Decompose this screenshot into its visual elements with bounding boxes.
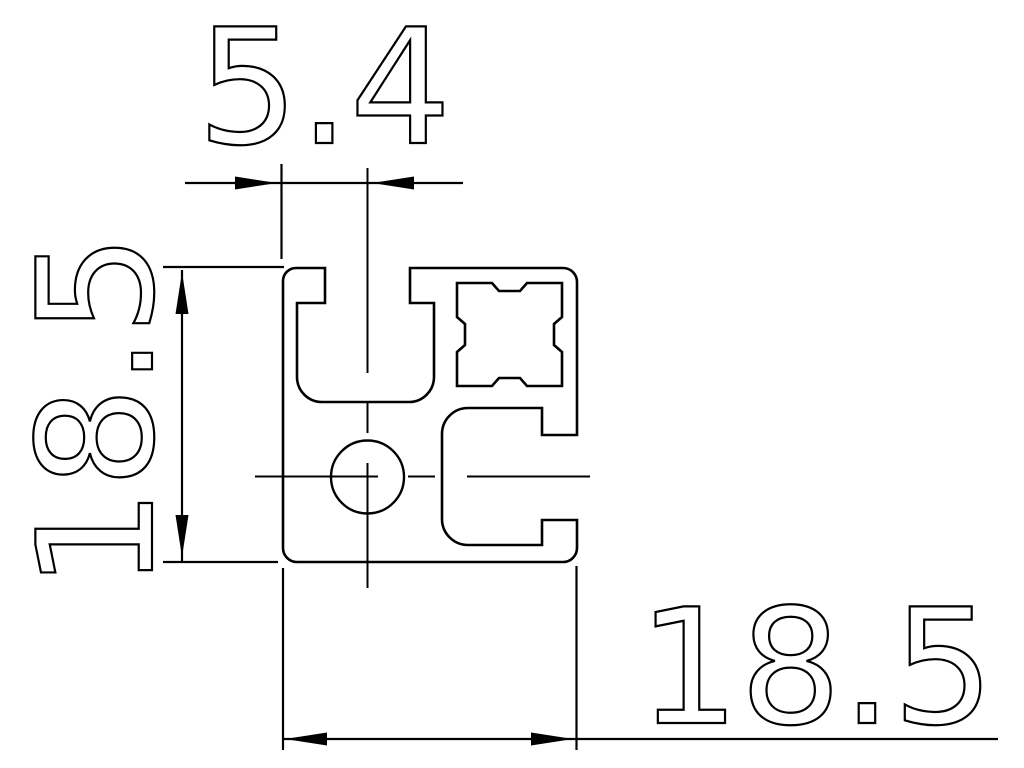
profile-outline <box>283 268 577 562</box>
dimension-left-value: 18.5 <box>3 234 190 590</box>
dimension-bottom-value: 18.5 <box>638 574 994 761</box>
drawing-canvas: 5.4 18.5 18.5 <box>0 0 1024 768</box>
dimension-top: 5.4 <box>185 0 463 259</box>
profile-section <box>255 168 590 588</box>
arrowhead-right-icon <box>531 733 573 746</box>
dimension-bottom: 18.5 <box>282 566 998 761</box>
arrowhead-left-icon <box>285 733 327 746</box>
dimension-top-value: 5.4 <box>197 0 451 181</box>
dimension-left: 18.5 <box>3 234 284 590</box>
square-cavity-outline <box>457 283 562 386</box>
cad-cross-section-drawing: 5.4 18.5 18.5 <box>0 0 1024 768</box>
